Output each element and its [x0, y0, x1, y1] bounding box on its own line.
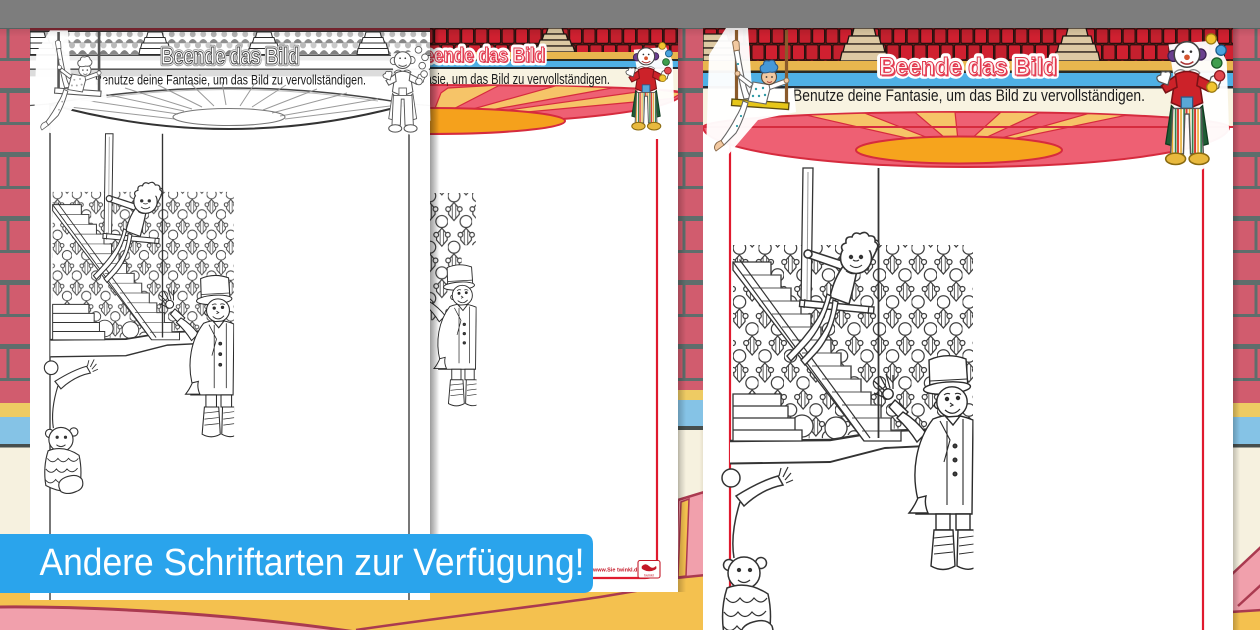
svg-text:Benutze deine Fantasie, um das: Benutze deine Fantasie, um das Bild zu v… — [95, 72, 366, 88]
svg-text:Beende das Bild: Beende das Bild — [161, 43, 299, 69]
svg-text:Beende das Bild: Beende das Bild — [879, 53, 1057, 81]
svg-text:Andere Schriftarten zur Verfüg: Andere Schriftarten zur Verfügung! — [40, 542, 585, 584]
svg-text:www.Sie twinkl.de: www.Sie twinkl.de — [592, 568, 640, 574]
svg-text:Benutze deine Fantasie, um das: Benutze deine Fantasie, um das Bild zu v… — [793, 86, 1145, 105]
svg-text:twinkl: twinkl — [644, 574, 654, 578]
